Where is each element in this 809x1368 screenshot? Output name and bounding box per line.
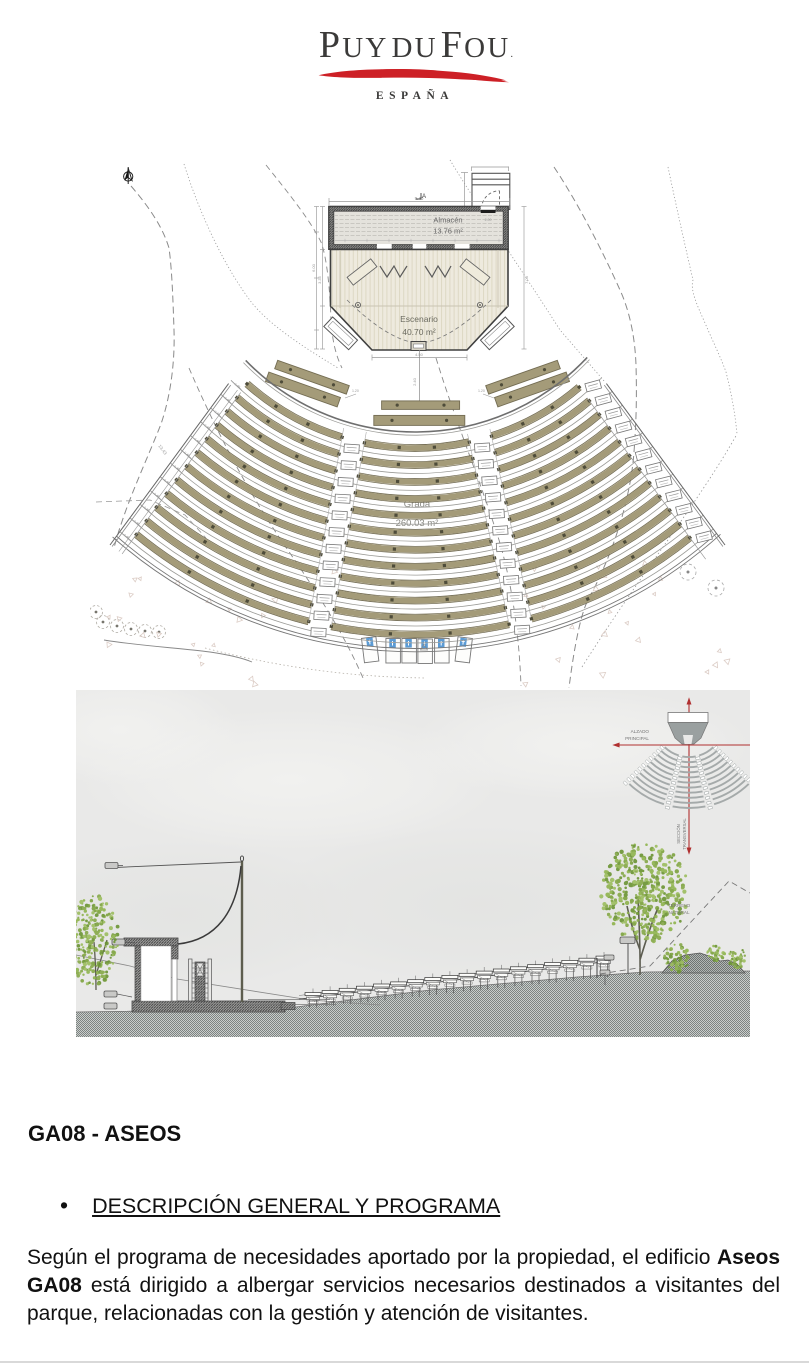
svg-text:PRINCIPAL: PRINCIPAL — [625, 736, 649, 741]
svg-text:Almacén: Almacén — [433, 216, 462, 225]
svg-text:40.70 m²: 40.70 m² — [402, 327, 436, 337]
svg-text:6.00: 6.00 — [311, 263, 316, 272]
svg-text:Escenario: Escenario — [400, 314, 438, 324]
svg-text:1.20: 1.20 — [352, 389, 359, 393]
svg-text:2.40: 2.40 — [412, 377, 417, 386]
svg-text:7.00: 7.00 — [524, 275, 529, 284]
svg-text:ALZADO: ALZADO — [631, 729, 650, 734]
svg-text:TRANSVERSAL: TRANSVERSAL — [682, 818, 687, 850]
svg-text:2.00: 2.00 — [485, 218, 492, 222]
svg-text:TERRENO: TERRENO — [668, 903, 691, 908]
svg-text:SECCIÓN: SECCIÓN — [676, 824, 681, 844]
svg-text:13.43: 13.43 — [157, 444, 168, 456]
svg-text:3.35: 3.35 — [317, 275, 322, 284]
svg-text:A: A — [422, 194, 426, 200]
svg-text:NATURAL: NATURAL — [668, 910, 690, 915]
svg-text:13.76 m²: 13.76 m² — [433, 227, 463, 236]
svg-text:1.20: 1.20 — [478, 389, 485, 393]
